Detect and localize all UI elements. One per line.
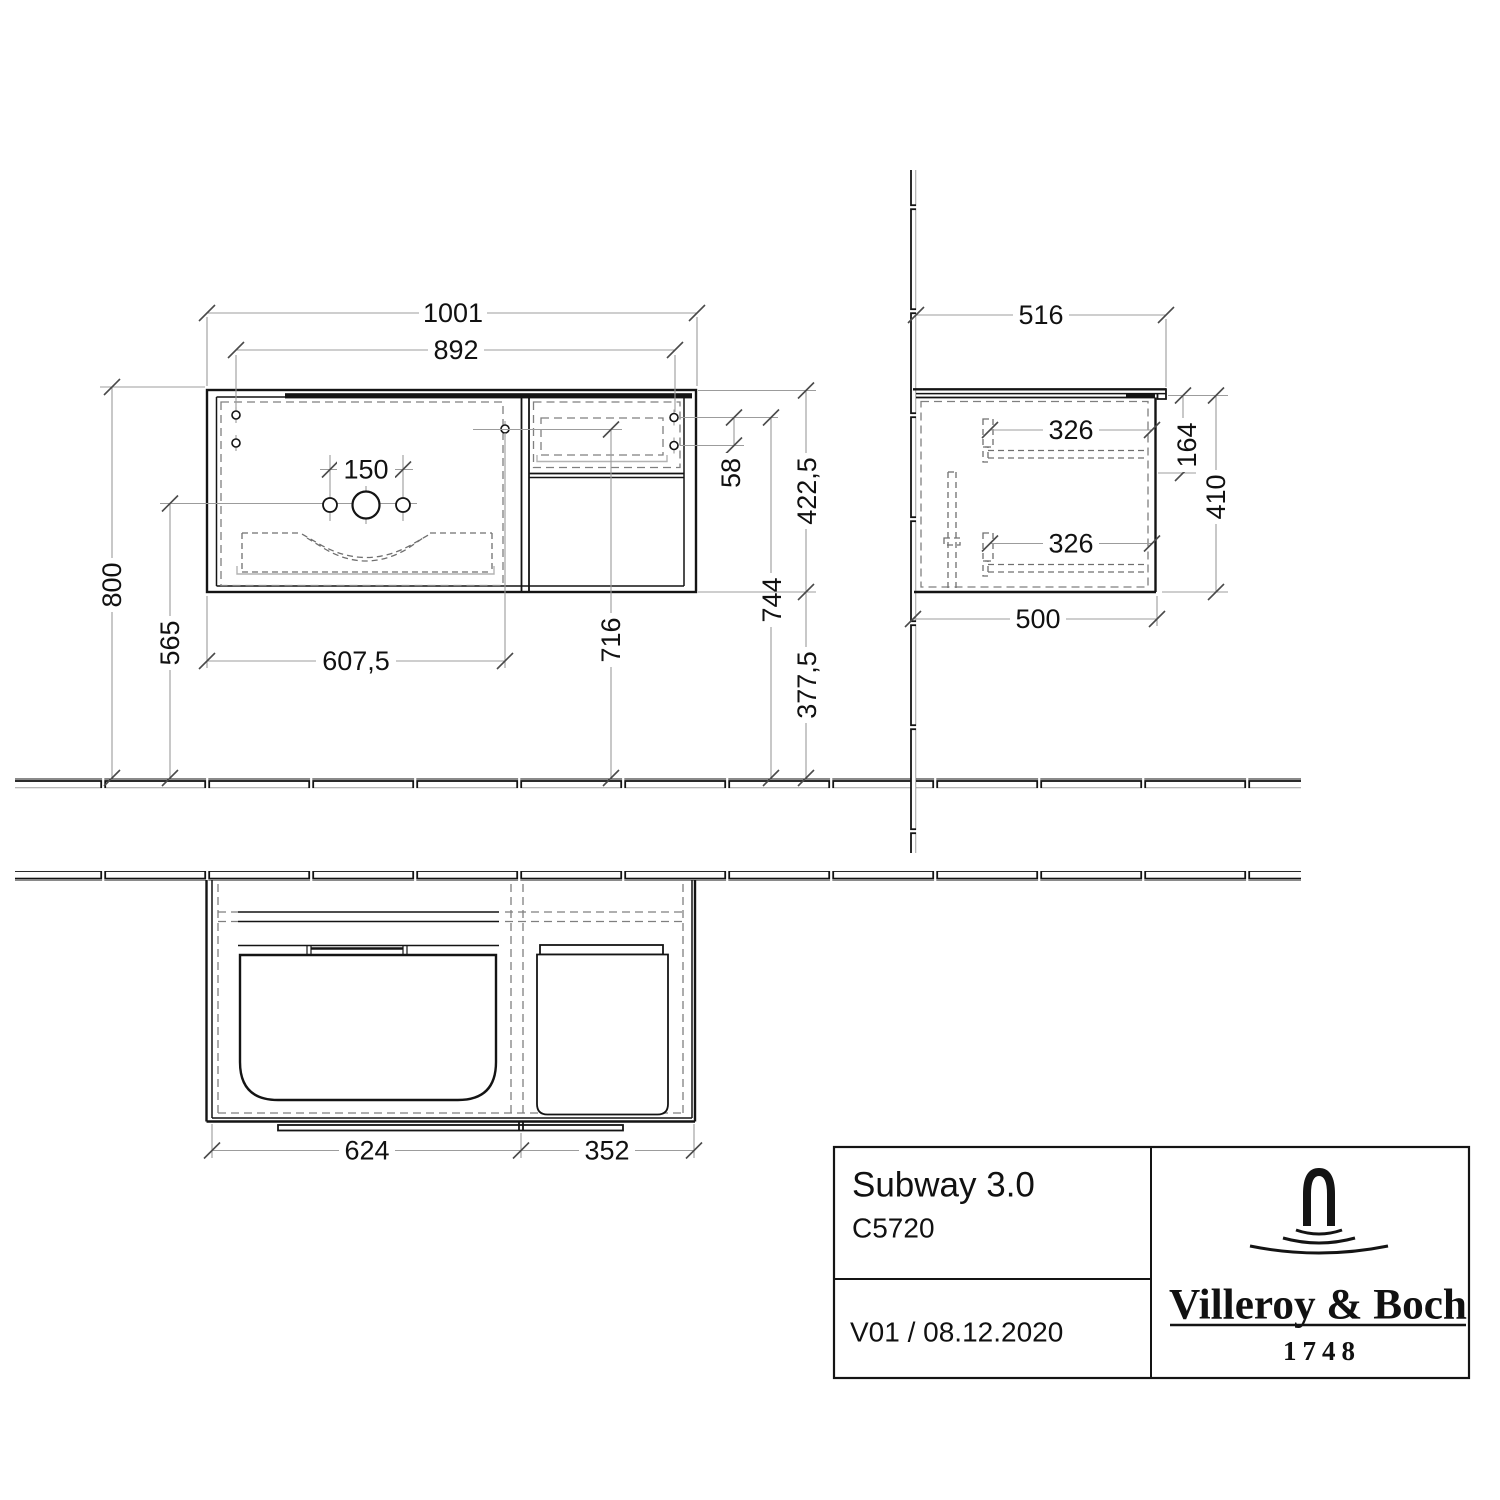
floor-section-line	[15, 779, 1301, 789]
dim-floor-clearance: 377,5	[792, 651, 822, 719]
article-number: C5720	[852, 1213, 935, 1244]
dim-lower-drawer-depth: 326	[1048, 529, 1093, 559]
technical-drawing-sheet: 1001 892 150 607,5 800 565	[0, 0, 1500, 1500]
title-block: Subway 3.0 C5720 V01 / 08.12.2020 Viller…	[834, 1147, 1469, 1378]
side-dimensions: 516 326 326 164 410 500	[905, 300, 1231, 634]
brand-name: Villeroy & Boch	[1169, 1282, 1467, 1329]
drawing-canvas: 1001 892 150 607,5 800 565	[0, 0, 1500, 1500]
top-shadow-gap	[285, 393, 692, 398]
plan-plinth	[278, 1122, 623, 1132]
dim-upper-section-height: 164	[1172, 422, 1202, 467]
dim-mount-hole-height: 744	[757, 577, 787, 622]
product-name: Subway 3.0	[852, 1166, 1035, 1205]
dim-upper-drawer-depth: 326	[1048, 415, 1093, 445]
dim-mount-hole-spacing: 58	[716, 458, 746, 488]
wall-section-line-plan	[15, 871, 1301, 881]
dim-side-top-depth: 516	[1018, 300, 1063, 330]
dim-tap-hole-spacing: 150	[343, 455, 388, 485]
dim-front-total-width: 1001	[423, 298, 483, 328]
dim-front-drilling-width: 892	[433, 335, 478, 365]
plan-basin	[238, 946, 499, 1101]
tap-hole-right	[396, 498, 410, 512]
plan-right-door	[537, 945, 668, 1115]
dim-body-depth: 500	[1015, 604, 1060, 634]
dim-inner-drawer-height: 716	[596, 617, 626, 662]
side-cabinet-outline	[913, 388, 1166, 592]
tap-hole-center	[353, 492, 380, 519]
dim-cabinet-height: 422,5	[792, 457, 822, 525]
dim-right-section-width: 352	[584, 1136, 629, 1166]
dim-tap-center-height: 565	[155, 620, 185, 665]
wall-section-line-side	[909, 170, 917, 853]
dim-left-section-width: 624	[344, 1136, 389, 1166]
washbasin-outline	[240, 955, 496, 1100]
dim-drain-offset: 607,5	[322, 646, 390, 676]
revision-date: V01 / 08.12.2020	[850, 1317, 1063, 1348]
bottom-view: 624 352	[204, 880, 702, 1166]
front-view: 1001 892 150 607,5 800 565	[97, 298, 822, 786]
front-cabinet-outline	[207, 390, 696, 592]
side-view: 516 326 326 164 410 500	[905, 300, 1231, 634]
dim-body-height: 410	[1201, 474, 1231, 519]
brand-year: 1748	[1283, 1336, 1361, 1366]
dim-top-edge-height: 800	[97, 562, 127, 607]
tap-hole-left	[323, 498, 337, 512]
